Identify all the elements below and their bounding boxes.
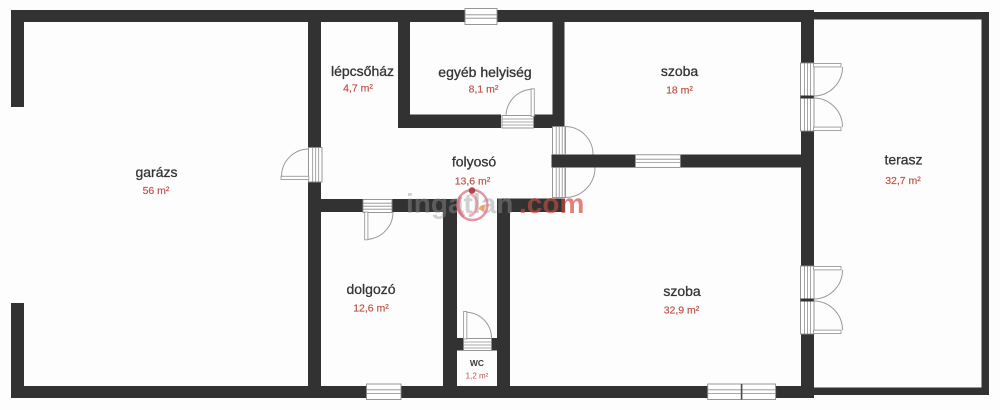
svg-text:garázs: garázs	[135, 164, 177, 180]
svg-text:56 m²: 56 m²	[143, 185, 170, 197]
svg-text:szoba: szoba	[661, 63, 699, 79]
svg-text:egyéb helyiség: egyéb helyiség	[438, 64, 531, 80]
svg-text:1,2 m²: 1,2 m²	[466, 372, 489, 381]
svg-text:32,9 m²: 32,9 m²	[664, 305, 700, 317]
svg-text:szoba: szoba	[663, 283, 701, 299]
svg-text:WC: WC	[470, 358, 484, 368]
svg-text:lépcsőház: lépcsőház	[331, 63, 394, 79]
svg-text:13,6 m²: 13,6 m²	[455, 176, 491, 188]
svg-text:12,6 m²: 12,6 m²	[353, 303, 389, 315]
svg-text:8,1 m²: 8,1 m²	[469, 84, 499, 96]
svg-text:32,7 m²: 32,7 m²	[885, 175, 921, 187]
svg-text:terasz: terasz	[884, 152, 922, 168]
svg-text:18 m²: 18 m²	[666, 85, 693, 97]
svg-text:4,7 m²: 4,7 m²	[343, 83, 373, 95]
svg-text:folyosó: folyosó	[452, 154, 497, 170]
svg-text:dolgozó: dolgozó	[346, 281, 395, 297]
